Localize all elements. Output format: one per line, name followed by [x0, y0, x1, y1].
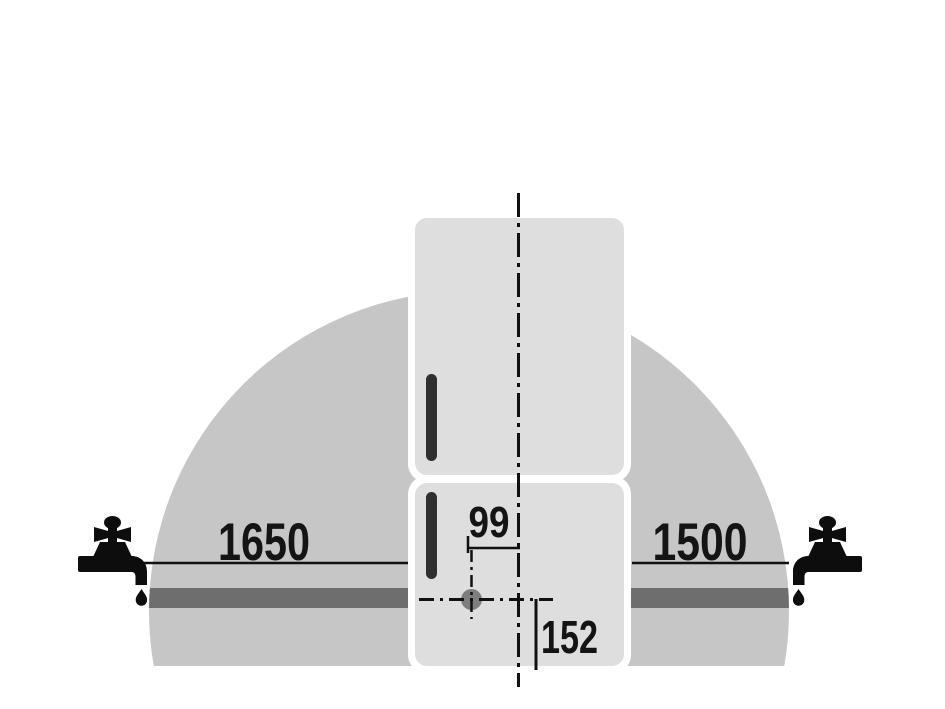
right-reach-value: 1500 [653, 513, 748, 572]
offset-value: 99 [469, 498, 510, 547]
installation-diagram: 1650 1500 99 152 [0, 0, 945, 709]
diagram-svg: 1650 1500 99 152 [0, 0, 945, 709]
height-value: 152 [541, 611, 598, 663]
faucet-icon [793, 516, 862, 606]
upper-door-handle [426, 374, 437, 461]
left-reach-value: 1650 [218, 513, 310, 572]
faucet-icon [78, 516, 147, 606]
lower-door-handle [426, 492, 437, 579]
